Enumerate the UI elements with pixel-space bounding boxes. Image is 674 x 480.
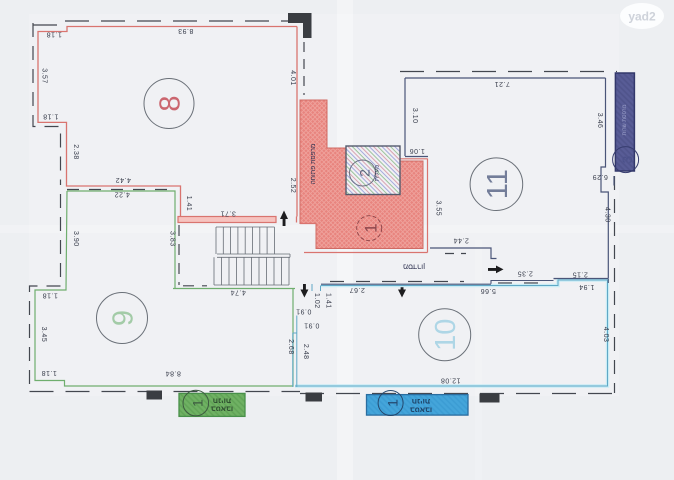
svg-text:yad2: yad2: [628, 10, 656, 24]
svg-text:1.02: 1.02: [313, 293, 320, 309]
svg-text:3: 3: [619, 155, 635, 163]
svg-text:1.18: 1.18: [46, 31, 62, 38]
svg-text:3.71: 3.71: [220, 210, 236, 217]
svg-text:2.15: 2.15: [572, 271, 588, 278]
svg-text:10: 10: [430, 319, 462, 351]
svg-text:3.83: 3.83: [169, 231, 176, 247]
svg-text:2.35: 2.35: [517, 270, 533, 277]
svg-text:3.90: 3.90: [72, 231, 79, 247]
svg-text:1.94: 1.94: [579, 283, 595, 290]
svg-text:1.18: 1.18: [41, 369, 57, 376]
svg-text:1.18: 1.18: [43, 113, 59, 120]
svg-text:4.03: 4.03: [602, 327, 609, 343]
svg-text:4.22: 4.22: [114, 191, 130, 198]
svg-text:8: 8: [155, 95, 187, 111]
svg-text:מסדרון: מסדרון: [403, 263, 425, 272]
svg-text:1: 1: [362, 223, 381, 232]
svg-text:2: 2: [357, 169, 373, 177]
svg-text:9: 9: [108, 310, 140, 326]
svg-text:5.66: 5.66: [480, 287, 496, 294]
svg-text:12.08: 12.08: [440, 377, 460, 384]
svg-text:1: 1: [190, 399, 206, 407]
svg-text:2.68: 2.68: [287, 339, 294, 355]
svg-text:2.48: 2.48: [302, 344, 309, 360]
svg-text:3.46: 3.46: [596, 113, 603, 129]
svg-text:בטאבו: בטאבו: [410, 406, 432, 415]
svg-text:חניות: חניות: [213, 397, 231, 406]
svg-text:מעלית: מעלית: [373, 165, 381, 181]
svg-text:4.01: 4.01: [289, 70, 296, 86]
svg-text:בטאבו: בטאבו: [211, 405, 233, 414]
svg-text:4.30: 4.30: [604, 207, 611, 223]
svg-text:7.21: 7.21: [494, 80, 510, 87]
svg-text:3.55: 3.55: [435, 200, 442, 216]
svg-text:8.93: 8.93: [178, 27, 194, 34]
svg-text:מרפסת שרות: מרפסת שרות: [622, 104, 628, 135]
svg-text:2.67: 2.67: [349, 286, 365, 293]
svg-text:0.91: 0.91: [304, 322, 320, 329]
svg-text:1: 1: [385, 399, 401, 407]
svg-text:3.10: 3.10: [411, 108, 418, 124]
svg-text:3.57: 3.57: [41, 68, 48, 84]
svg-text:1.06: 1.06: [409, 147, 425, 154]
svg-text:חניות: חניות: [412, 397, 430, 406]
svg-text:4.42: 4.42: [115, 176, 131, 183]
svg-text:1.41: 1.41: [325, 293, 332, 309]
svg-text:2.38: 2.38: [72, 144, 79, 160]
svg-text:מרפסת פתוחה: מרפסת פתוחה: [310, 144, 317, 185]
svg-text:0.91: 0.91: [296, 308, 312, 315]
svg-text:8.84: 8.84: [165, 370, 181, 377]
svg-text:3.45: 3.45: [40, 327, 47, 343]
svg-text:1.41: 1.41: [185, 196, 192, 212]
svg-text:1.18: 1.18: [42, 292, 58, 299]
svg-text:4.74: 4.74: [230, 289, 246, 296]
svg-text:2.44: 2.44: [453, 237, 469, 244]
svg-text:6.29: 6.29: [592, 173, 608, 180]
svg-text:11: 11: [482, 169, 514, 199]
svg-text:2.52: 2.52: [289, 178, 296, 194]
